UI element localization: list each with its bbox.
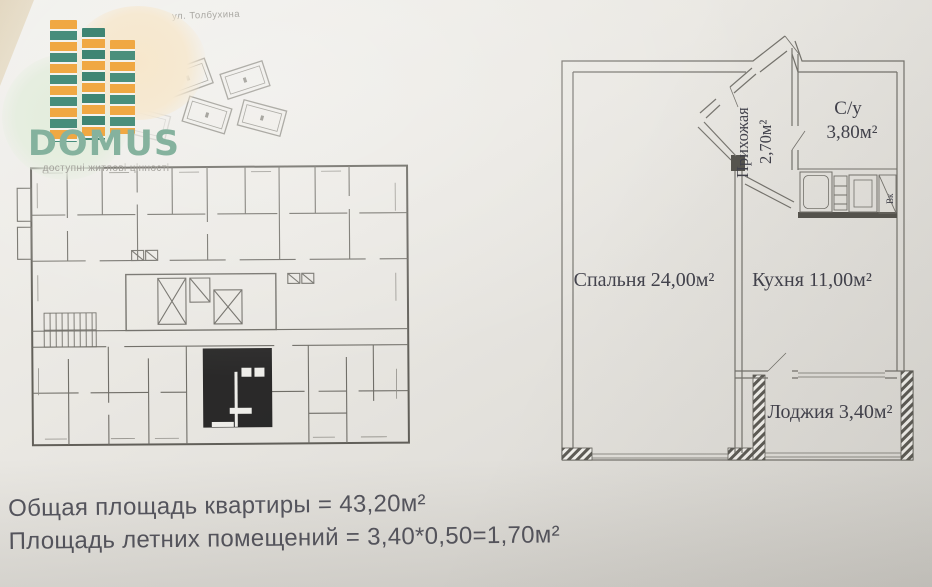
hallway-label: Прихожая [733, 107, 752, 178]
core-block [126, 274, 276, 331]
floor-corridor [32, 329, 408, 348]
area-summary: Общая площадь квартиры = 43,20м² Площадь… [8, 485, 560, 558]
brand-wordmark: DOMUS [26, 126, 182, 162]
bedroom-kitchen-wall [731, 155, 745, 453]
site-block-4 [237, 100, 286, 137]
apartment-plan: Спальня 24,00м² Кухня 11,00м² С/у 3,80м²… [540, 28, 930, 470]
loggia-label: Лоджия 3,40м² [767, 401, 892, 423]
site-block-3 [220, 61, 270, 99]
room-labels: Спальня 24,00м² Кухня 11,00м² С/у 3,80м²… [574, 98, 895, 423]
summer-area-line: Площадь летних помещений = 3,40*0,50=1,7… [8, 518, 560, 558]
kitchen-label: Кухня 11,00м² [752, 269, 872, 291]
domus-logo: DOMUS доступні житлові цінності [6, 12, 186, 172]
kitchen-loggia-wall [735, 353, 904, 378]
elevator-shaft-icon [158, 278, 186, 324]
bathtub-icon [800, 172, 832, 212]
brand-tagline: доступні житлові цінності [26, 163, 186, 174]
logo-tower-3 [110, 40, 135, 134]
highlighted-unit [203, 349, 272, 427]
building-floor-plan [7, 161, 413, 454]
scanned-floorplan-page: ул. Толбухина DOMUS доступні житлові цін… [0, 0, 932, 587]
vent-label: Вк [885, 193, 895, 204]
site-block-2 [182, 96, 232, 134]
hallway-area-label: 2,70м² [756, 120, 775, 164]
bathroom-label: С/у [834, 98, 862, 119]
stairs-icon [44, 313, 96, 347]
bathroom-area-label: 3,80м² [827, 122, 878, 143]
sink-icon [849, 175, 877, 212]
elevator-shaft-icon [214, 290, 242, 324]
bedroom-label: Спальня 24,00м² [574, 269, 715, 291]
radiator-icon [834, 176, 847, 210]
